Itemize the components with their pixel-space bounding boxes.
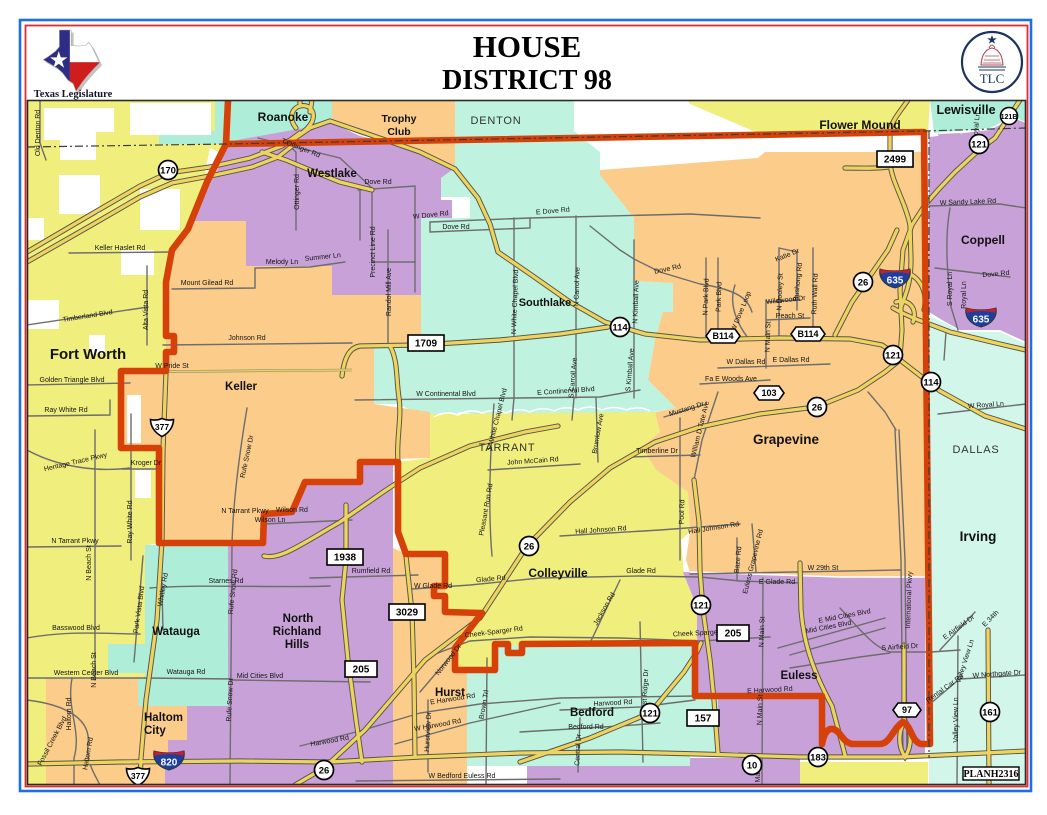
svg-text:Flower Mound: Flower Mound	[819, 118, 900, 132]
svg-text:1709: 1709	[415, 339, 438, 350]
svg-text:Dove Rd: Dove Rd	[442, 224, 469, 231]
svg-text:Kroger Dr: Kroger Dr	[131, 460, 162, 467]
svg-text:Hills: Hills	[285, 639, 309, 651]
svg-text:97: 97	[902, 705, 912, 715]
svg-text:114: 114	[612, 322, 628, 333]
svg-text:Wilson Rd: Wilson Rd	[276, 507, 308, 514]
svg-text:W Dallas Rd: W Dallas Rd	[727, 359, 766, 366]
svg-text:Southlake: Southlake	[519, 297, 572, 309]
svg-text:Johnson Rd: Johnson Rd	[228, 335, 265, 342]
svg-text:1938: 1938	[334, 553, 357, 564]
svg-text:114: 114	[923, 377, 939, 388]
svg-text:Melody Ln: Melody Ln	[266, 259, 298, 266]
svg-text:Ray White Rd: Ray White Rd	[127, 500, 134, 543]
svg-text:Timberline Dr: Timberline Dr	[636, 448, 678, 455]
svg-text:B114: B114	[712, 331, 733, 341]
svg-text:Wilson Ln: Wilson Ln	[255, 517, 286, 524]
svg-text:Watauga: Watauga	[152, 626, 200, 638]
svg-text:W 29th St: W 29th St	[808, 565, 839, 572]
svg-text:121: 121	[885, 350, 902, 361]
svg-text:W Pride St: W Pride St	[155, 363, 189, 370]
svg-text:Fort Worth: Fort Worth	[50, 346, 126, 363]
svg-text:121: 121	[693, 600, 710, 611]
svg-text:N Main St: N Main St	[764, 321, 772, 352]
svg-text:N Tarrant Pkwy: N Tarrant Pkwy	[221, 508, 269, 515]
svg-text:B114: B114	[797, 329, 818, 339]
svg-text:Rumfield Rd: Rumfield Rd	[352, 568, 391, 575]
svg-text:Valley View Ln: Valley View Ln	[953, 697, 960, 742]
svg-text:635: 635	[887, 276, 904, 287]
svg-text:Haltom Rd: Haltom Rd	[66, 697, 73, 730]
svg-text:103: 103	[761, 388, 776, 398]
svg-text:Dove Rd: Dove Rd	[364, 179, 391, 186]
svg-text:183: 183	[810, 752, 826, 763]
svg-text:N Carrol Ave: N Carrol Ave	[573, 267, 581, 307]
svg-text:820: 820	[161, 758, 178, 769]
svg-text:Basswood Blvd: Basswood Blvd	[52, 625, 100, 632]
svg-text:10: 10	[747, 760, 758, 771]
svg-text:Ray White Rd: Ray White Rd	[44, 407, 87, 414]
svg-text:26: 26	[319, 765, 330, 776]
svg-text:Euless: Euless	[780, 670, 817, 682]
svg-text:121B: 121B	[1001, 114, 1018, 121]
svg-text:Roanoke: Roanoke	[258, 110, 309, 124]
svg-text:N Main St: N Main St	[756, 694, 764, 725]
svg-text:Bedford: Bedford	[570, 707, 614, 719]
svg-text:Irving: Irving	[960, 529, 997, 544]
svg-text:PLANH2316: PLANH2316	[964, 769, 1019, 780]
svg-text:Precinct Line Rd: Precinct Line Rd	[370, 226, 377, 277]
svg-text:Western Center Blvd: Western Center Blvd	[54, 670, 119, 677]
svg-text:City: City	[144, 725, 166, 737]
svg-text:DENTON: DENTON	[470, 115, 521, 127]
svg-text:Keller Haslet Rd: Keller Haslet Rd	[95, 245, 146, 252]
svg-text:DISTRICT 98: DISTRICT 98	[442, 65, 612, 96]
svg-text:Grapevine: Grapevine	[753, 432, 820, 447]
svg-text:Bedford Rd: Bedford Rd	[568, 724, 604, 731]
svg-text:26: 26	[524, 541, 535, 552]
svg-text:635: 635	[973, 315, 990, 326]
svg-text:Haltom: Haltom	[144, 712, 183, 724]
svg-text:W Continental Blvd: W Continental Blvd	[416, 391, 476, 398]
svg-text:N Main St: N Main St	[758, 616, 766, 647]
svg-text:S Royal Ln: S Royal Ln	[947, 272, 954, 306]
svg-text:2499: 2499	[884, 155, 907, 166]
svg-text:Watauga Rd: Watauga Rd	[167, 669, 206, 676]
svg-text:Lewisville: Lewisville	[936, 103, 995, 117]
svg-text:Westlake: Westlake	[307, 168, 357, 180]
svg-text:170: 170	[160, 165, 176, 176]
svg-text:Richland: Richland	[273, 626, 322, 638]
svg-text:N Park Blvd: N Park Blvd	[702, 278, 710, 315]
svg-text:HOUSE: HOUSE	[473, 29, 582, 64]
svg-text:377: 377	[155, 422, 169, 432]
svg-text:Alta Vista Rd: Alta Vista Rd	[143, 290, 150, 330]
svg-text:Coppell: Coppell	[961, 233, 1005, 247]
svg-text:Trophy: Trophy	[381, 113, 416, 125]
svg-text:157: 157	[695, 714, 712, 725]
svg-text:Fa E Woods Ave: Fa E Woods Ave	[705, 376, 757, 383]
svg-text:Ottinger Rd: Ottinger Rd	[294, 174, 301, 210]
svg-text:26: 26	[858, 277, 869, 288]
svg-text:Colleyville: Colleyville	[528, 566, 588, 580]
svg-text:Keller: Keller	[225, 381, 257, 393]
svg-text:121: 121	[642, 708, 659, 719]
svg-text:Mid Cities Blvd: Mid Cities Blvd	[237, 673, 283, 680]
svg-text:Randol Mill Ave: Randol Mill Ave	[386, 268, 393, 316]
svg-text:161: 161	[982, 707, 999, 718]
svg-text:DALLAS: DALLAS	[953, 444, 1000, 456]
svg-text:E Dallas Rd: E Dallas Rd	[773, 357, 810, 364]
svg-text:Old Denton Rd: Old Denton Rd	[35, 110, 42, 156]
svg-text:TLC: TLC	[980, 71, 1005, 86]
svg-text:N Beach St: N Beach St	[86, 545, 93, 580]
svg-text:Royal Ln: Royal Ln	[961, 281, 968, 309]
svg-text:Mount Gilead Rd: Mount Gilead Rd	[181, 280, 234, 287]
svg-text:3029: 3029	[396, 608, 419, 619]
svg-text:Ruth Wall Rd: Ruth Wall Rd	[811, 273, 819, 314]
svg-text:Club: Club	[387, 126, 410, 138]
svg-text:26: 26	[812, 402, 823, 413]
svg-text:E Glade Rd: E Glade Rd	[759, 579, 795, 586]
svg-text:W Glade Rd: W Glade Rd	[414, 583, 452, 590]
svg-text:North: North	[283, 613, 314, 625]
svg-text:205: 205	[353, 665, 370, 676]
svg-text:W Bedford Euless Rd: W Bedford Euless Rd	[429, 773, 496, 780]
svg-text:Starnes Rd: Starnes Rd	[208, 578, 243, 585]
svg-text:Pool Rd: Pool Rd	[679, 499, 687, 524]
svg-text:Peach St: Peach St	[776, 313, 804, 320]
svg-text:Texas Legislature: Texas Legislature	[34, 89, 113, 100]
svg-text:N Dooley St: N Dooley St	[776, 273, 784, 311]
svg-text:205: 205	[725, 629, 742, 640]
svg-text:377: 377	[131, 771, 145, 781]
svg-text:N Tarrant Pkwy: N Tarrant Pkwy	[51, 538, 99, 545]
svg-text:Park Blvd: Park Blvd	[715, 282, 723, 312]
svg-text:121: 121	[971, 139, 988, 150]
svg-text:Glade Rd: Glade Rd	[626, 568, 656, 575]
svg-text:Golden Triangle Blvd: Golden Triangle Blvd	[40, 377, 105, 384]
